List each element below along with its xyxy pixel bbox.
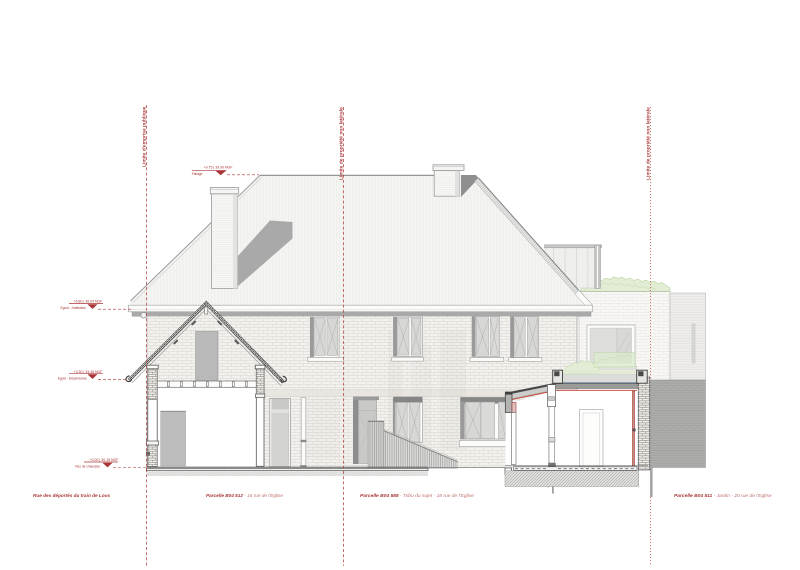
svg-text:+0.00 | 30.15 NGF: +0.00 | 30.15 NGF (90, 458, 119, 462)
svg-text:Faitage: Faitage (192, 172, 203, 176)
svg-text:Parcelle B04 511 - Jardin - 20: Parcelle B04 511 - Jardin - 20 rue de l'… (674, 493, 772, 499)
svg-text:Egout - Dépendance: Egout - Dépendance (58, 376, 87, 380)
svg-text:Limite d'emprise publique: Limite d'emprise publique (141, 106, 147, 167)
svg-text:Egout - Habitation: Egout - Habitation (60, 306, 86, 310)
svg-text:Parcelle B04 588 - Tribu du su: Parcelle B04 588 - Tribu du sujet - 18 r… (360, 493, 474, 499)
svg-text:+3.30 | 33.45 NGF: +3.30 | 33.45 NGF (74, 370, 103, 374)
svg-text:Limite de propriété non latéra: Limite de propriété non latérale (645, 107, 651, 180)
svg-text:Parcelle B04 512 - 16 rue de l: Parcelle B04 512 - 16 rue de l'Eglise (206, 493, 283, 498)
svg-text:Limite de propriété non latéra: Limite de propriété non latérale (338, 107, 344, 180)
svg-text:Rue des déportés du train de L: Rue des déportés du train de Loos (33, 493, 110, 498)
svg-text:+9.75 | 39.90 NGF: +9.75 | 39.90 NGF (204, 165, 233, 169)
svg-text:+5.80 | 36.04 NGF: +5.80 | 36.04 NGF (74, 300, 103, 304)
svg-text:Rez de chaussée: Rez de chaussée (75, 464, 100, 468)
